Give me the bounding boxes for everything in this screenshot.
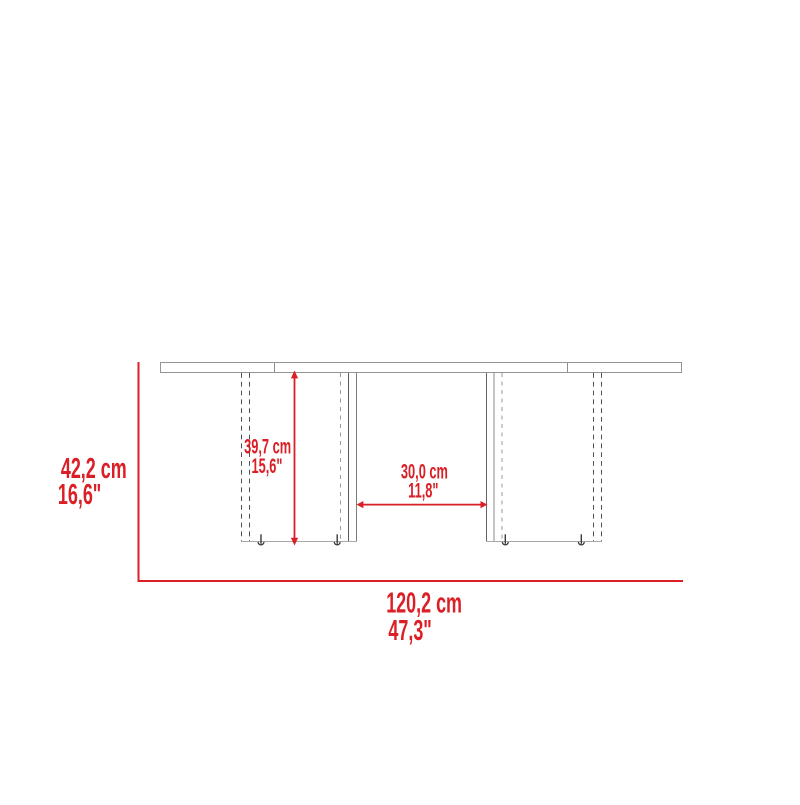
svg-text:47,3": 47,3" (388, 615, 431, 647)
svg-text:15,6": 15,6" (252, 454, 283, 478)
svg-text:16,6": 16,6" (58, 479, 101, 511)
svg-text:11,8": 11,8" (408, 478, 438, 502)
